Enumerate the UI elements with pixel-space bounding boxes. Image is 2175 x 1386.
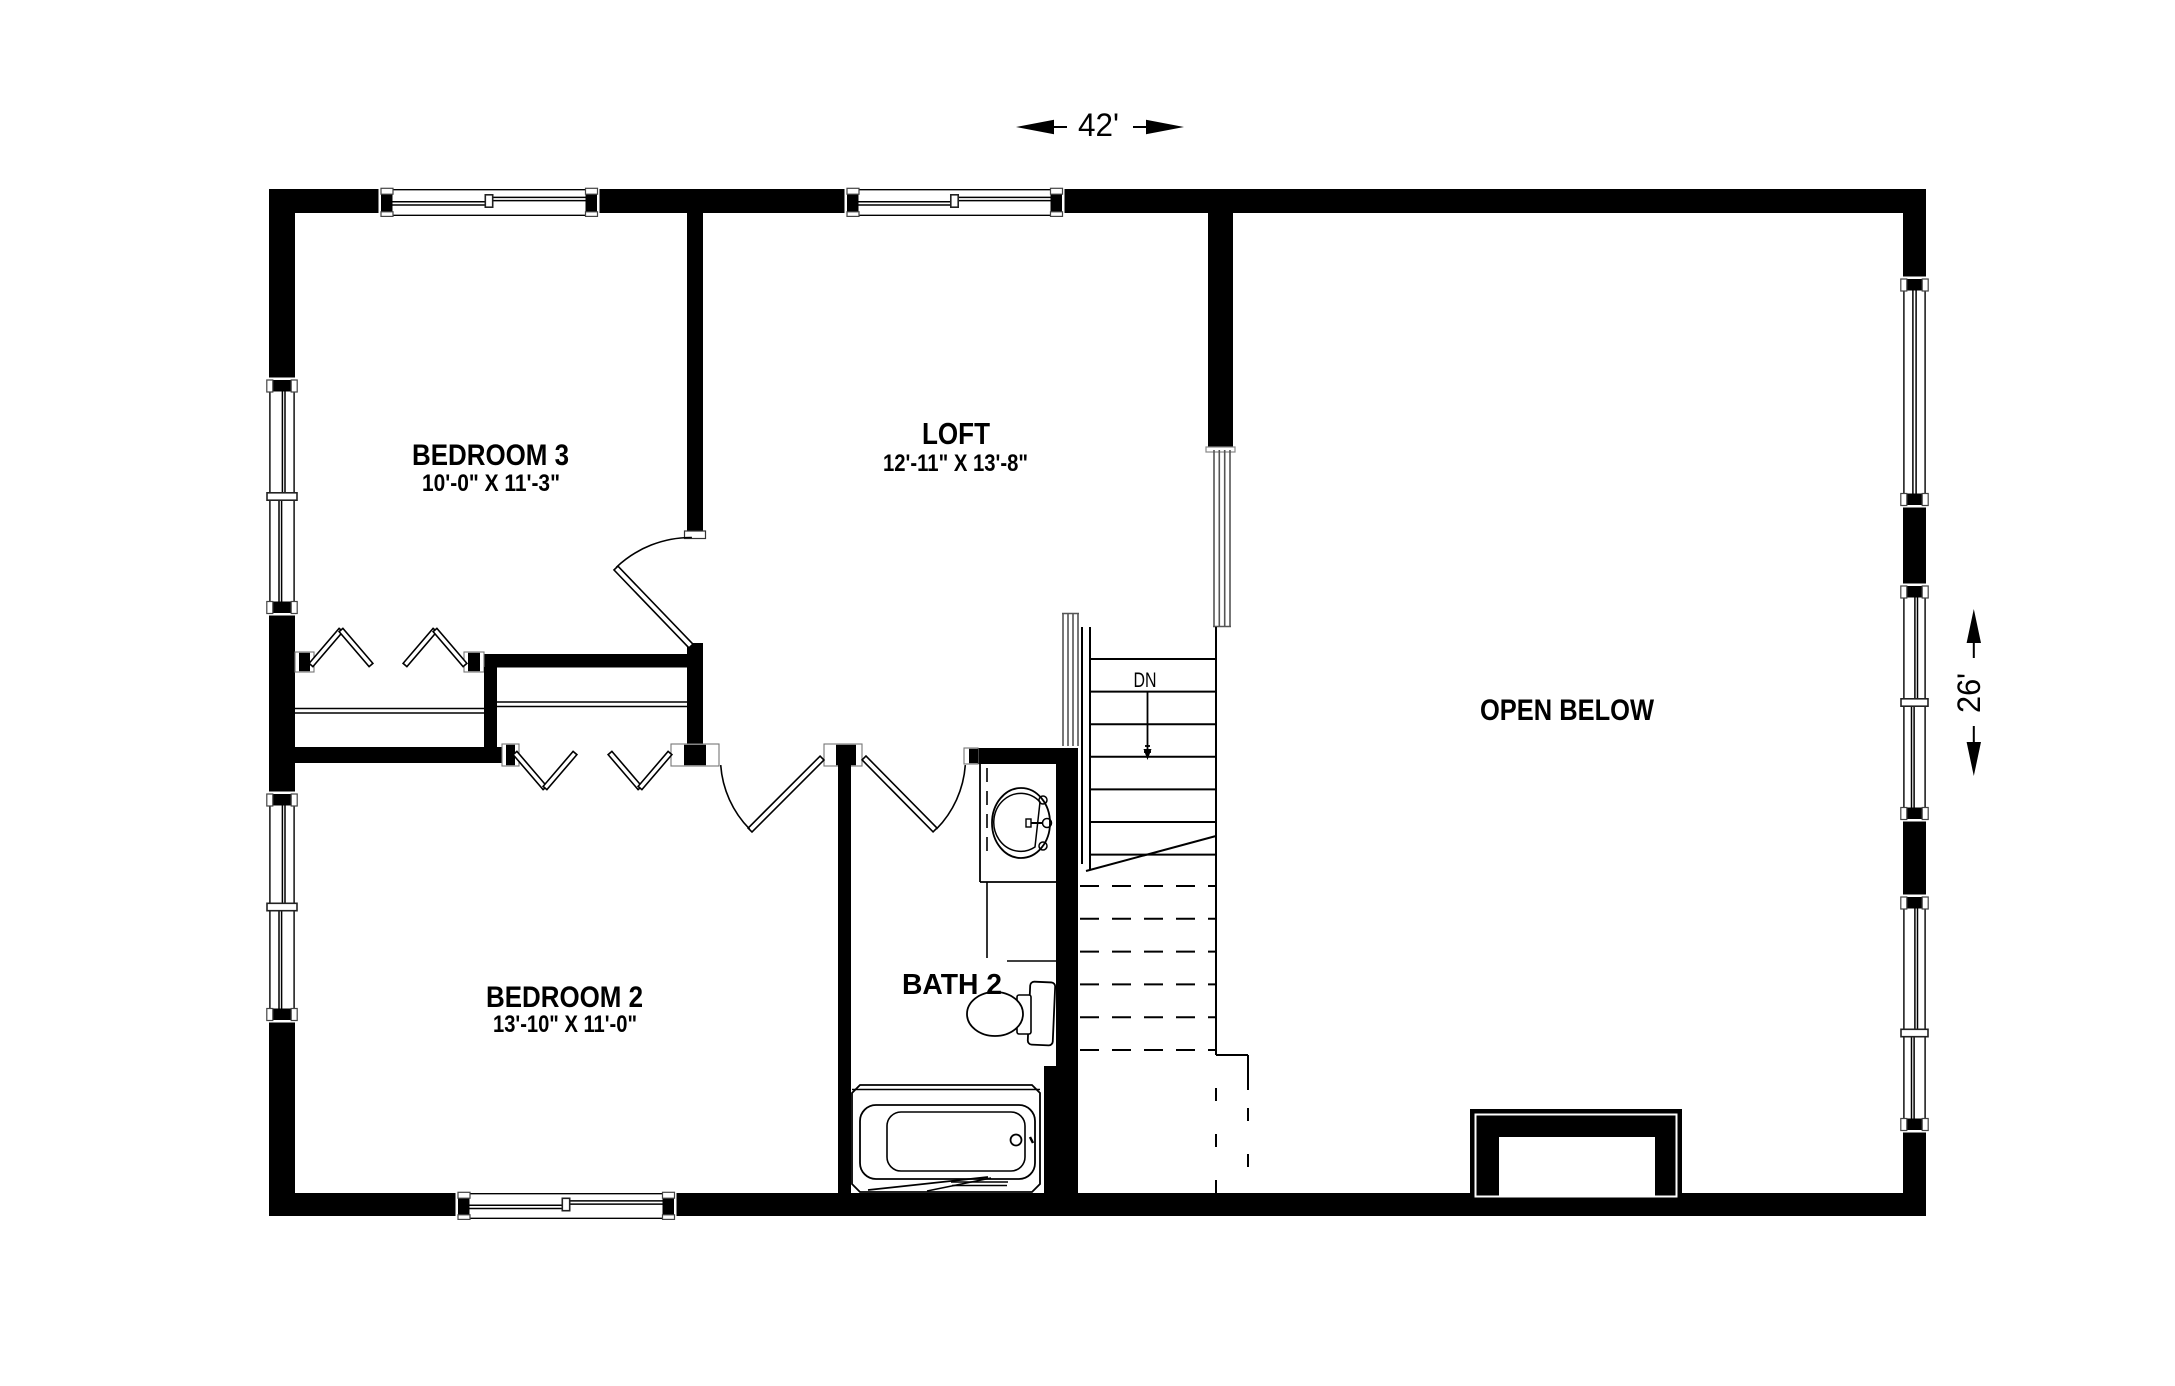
svg-text:LOFT: LOFT	[922, 416, 990, 451]
svg-text:13'-10" X 11'-0": 13'-10" X 11'-0"	[493, 1011, 637, 1038]
svg-text:26': 26'	[1951, 673, 1987, 713]
svg-text:42': 42'	[1078, 107, 1119, 143]
svg-text:BATH 2: BATH 2	[902, 969, 1002, 1001]
svg-text:BEDROOM 2: BEDROOM 2	[486, 981, 643, 1014]
svg-text:BEDROOM 3: BEDROOM 3	[412, 439, 569, 472]
svg-text:12'-11" X 13'-8": 12'-11" X 13'-8"	[883, 450, 1028, 477]
svg-text:OPEN BELOW: OPEN BELOW	[1480, 694, 1655, 727]
svg-text:10'-0" X 11'-3": 10'-0" X 11'-3"	[422, 470, 560, 497]
svg-text:DN: DN	[1134, 669, 1157, 692]
